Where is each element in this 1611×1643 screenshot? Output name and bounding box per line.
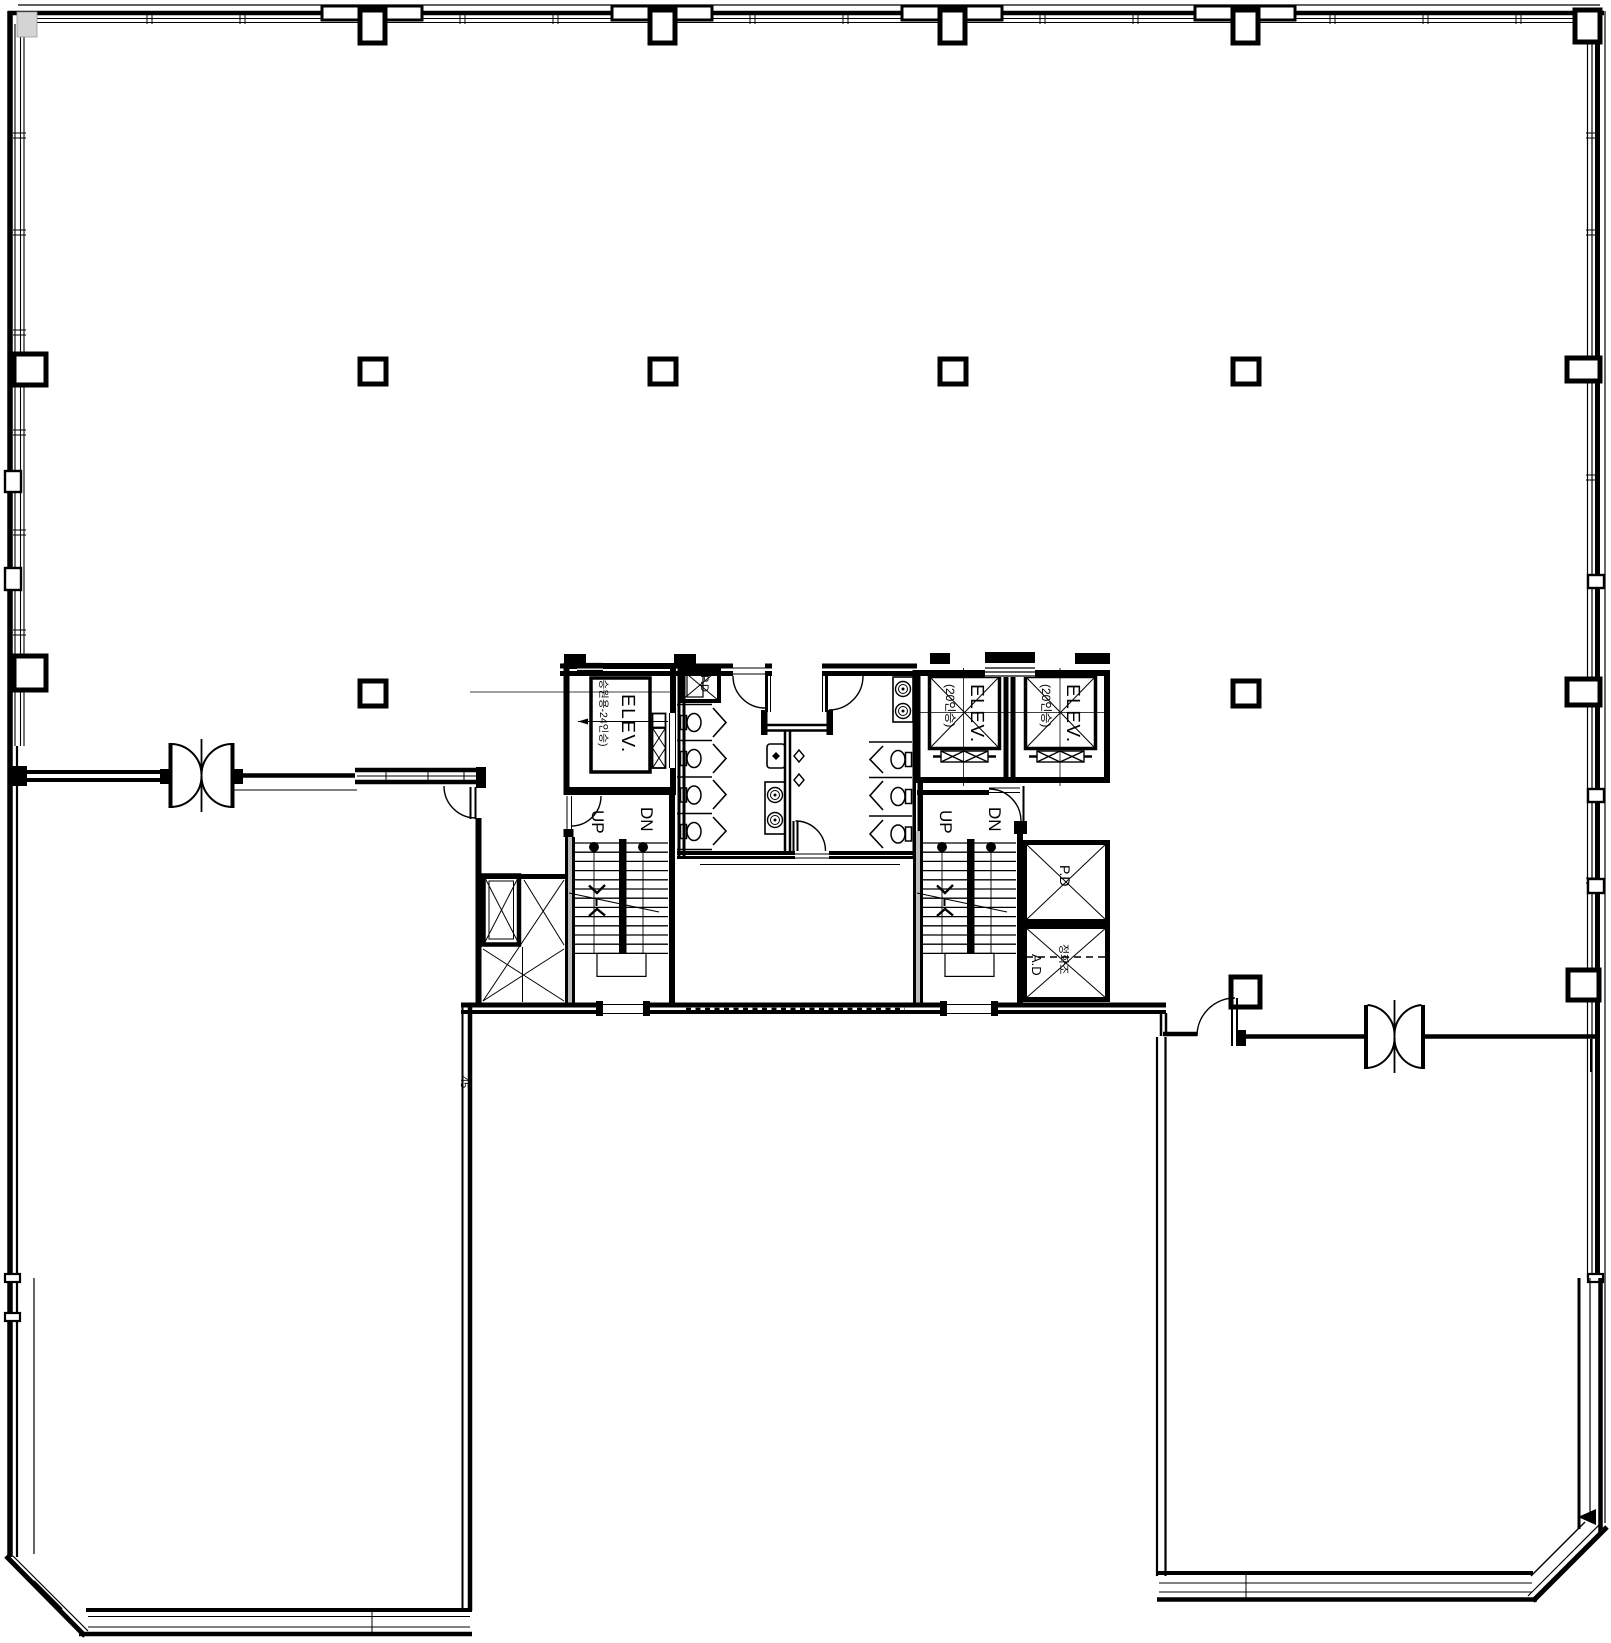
svg-text:DN: DN xyxy=(637,807,656,832)
svg-text:(20인승): (20인승) xyxy=(943,684,957,727)
svg-text:(승원용-24인승): (승원용-24인승) xyxy=(597,676,609,746)
svg-text:UP: UP xyxy=(588,810,607,834)
svg-text:ELEV.: ELEV. xyxy=(617,694,638,754)
svg-text:ELEV.: ELEV. xyxy=(1062,684,1083,744)
svg-text:ELEV.: ELEV. xyxy=(966,684,987,744)
svg-text:정화조: 정화조 xyxy=(1057,944,1070,974)
svg-text:P.D: P.D xyxy=(1057,865,1073,887)
svg-text:P.D: P.D xyxy=(698,675,710,692)
svg-text:(20인승): (20인승) xyxy=(1039,684,1053,727)
svg-text:DN: DN xyxy=(985,807,1004,832)
svg-text:UP: UP xyxy=(936,810,955,834)
svg-text:A.D: A.D xyxy=(1029,954,1044,976)
svg-text:45: 45 xyxy=(458,1076,470,1088)
